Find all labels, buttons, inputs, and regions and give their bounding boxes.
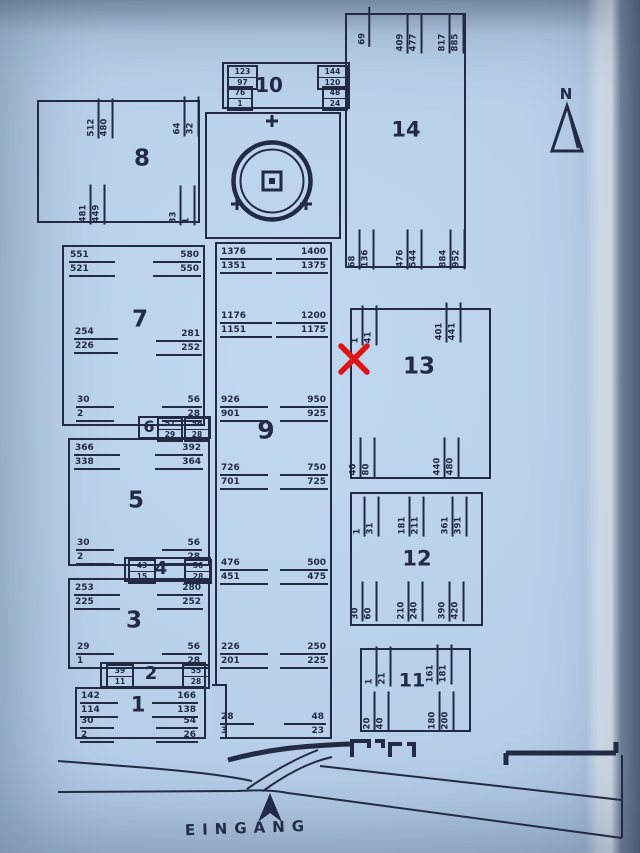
grave-range: 121 (365, 646, 392, 686)
grave-range: 68136 (348, 229, 375, 269)
grave-range: 476451 (220, 557, 268, 585)
grave-range: 950925 (280, 394, 328, 422)
block-5-label: 5 (128, 490, 144, 513)
grave-range: 926901 (220, 394, 268, 422)
grave-range: 280252 (157, 582, 203, 610)
grave-range: 69 (357, 7, 370, 47)
roundabout-block (205, 112, 341, 239)
main-road (58, 750, 622, 838)
grave-range: 884952 (439, 229, 466, 269)
block-8-label: 8 (134, 148, 150, 171)
north-arrow-icon (552, 106, 582, 151)
block-12-label: 12 (402, 549, 431, 570)
block-13-label: 13 (403, 356, 435, 379)
grave-range: 161181 (426, 644, 453, 684)
grave-range: 361391 (441, 496, 468, 536)
grave-range: 726701 (220, 462, 268, 490)
block-7-label: 7 (132, 309, 148, 332)
grave-range: 5426 (156, 715, 198, 743)
grave-range: 390420 (438, 581, 465, 621)
grave-range: 226201 (220, 641, 268, 669)
grave-range: 500475 (280, 557, 328, 585)
grave-range: 180200 (428, 691, 455, 731)
grave-range: 366338 (74, 442, 120, 470)
grave-range: 11761151 (220, 310, 272, 338)
grave-range: 3911 (106, 664, 134, 689)
grave-range: 14001375 (276, 246, 328, 274)
grave-range: 210240 (397, 581, 424, 621)
north-label: N (560, 85, 573, 103)
grave-range: 302 (80, 715, 114, 743)
grave-range: 331 (169, 185, 196, 225)
grave-range: 750725 (280, 462, 328, 490)
block-6-label: 6 (143, 419, 154, 435)
grave-range: 817885 (438, 13, 465, 53)
grave-range: 302 (76, 537, 114, 565)
block-3-label: 3 (126, 610, 142, 633)
grave-range: 409477 (396, 13, 423, 53)
grave-range: 5628 (184, 559, 212, 584)
grave-range: 761 (227, 86, 253, 111)
grave-range: 281252 (156, 328, 202, 356)
grave-range: 141 (351, 305, 378, 345)
grave-range: 250225 (280, 641, 328, 669)
block-11-label: 11 (399, 672, 425, 691)
grave-range: 5528 (182, 664, 210, 689)
grave-range: 131 (353, 496, 380, 536)
block-1-label: 1 (131, 695, 146, 716)
grave-range: 4315 (128, 559, 156, 584)
entrance-label: EINGANG (185, 817, 312, 839)
grave-range: 253225 (74, 582, 120, 610)
grave-range: 476544 (396, 229, 423, 269)
grave-range: 4823 (284, 711, 326, 739)
cemetery-plan: 1 2 3 4 5 6 7 8 9 10 11 12 13 14 12397 7… (0, 0, 640, 853)
boundary-wall (228, 742, 616, 765)
grave-range: 283 (220, 711, 254, 739)
grave-range: 12001175 (276, 310, 328, 338)
block-10-label: 10 (255, 75, 283, 95)
grave-range: 5729 (157, 417, 183, 442)
building-outline (352, 741, 414, 757)
grave-range: 5628 (184, 417, 210, 442)
grave-range: 13761351 (220, 246, 272, 274)
grave-range: 6432 (173, 96, 200, 136)
grave-range: 580550 (153, 249, 201, 277)
grave-range: 3060 (351, 581, 378, 621)
grave-range: 4824 (322, 86, 348, 111)
grave-range: 440480 (433, 437, 460, 477)
block-2-label: 2 (145, 665, 158, 683)
grave-range: 481449 (79, 184, 106, 224)
grave-range: 302 (76, 394, 114, 422)
grave-range: 551521 (69, 249, 115, 277)
grave-range: 181211 (398, 496, 425, 536)
grave-range: 392364 (155, 442, 203, 470)
grave-range: 4080 (349, 437, 376, 477)
grave-range: 512480 (87, 98, 114, 138)
grave-range: 254226 (74, 326, 118, 354)
grave-range: 401441 (435, 302, 462, 342)
grave-range: 2040 (363, 691, 390, 731)
block-14-label: 14 (391, 120, 420, 141)
